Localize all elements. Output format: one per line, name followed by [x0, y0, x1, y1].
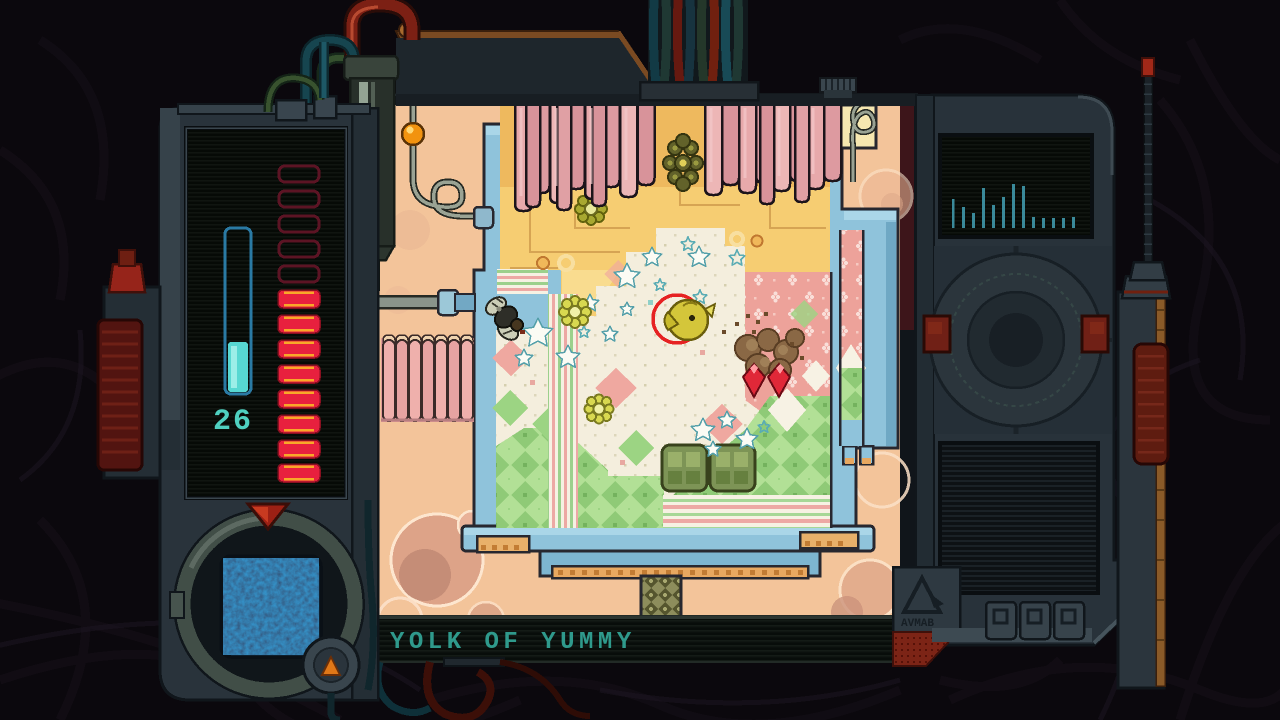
- svg-text:AVMAB: AVMAB: [901, 618, 934, 630]
- svg-text:YOLK OF YUMMY: YOLK OF YUMMY: [390, 629, 636, 656]
- svg-text:26: 26: [213, 405, 253, 439]
